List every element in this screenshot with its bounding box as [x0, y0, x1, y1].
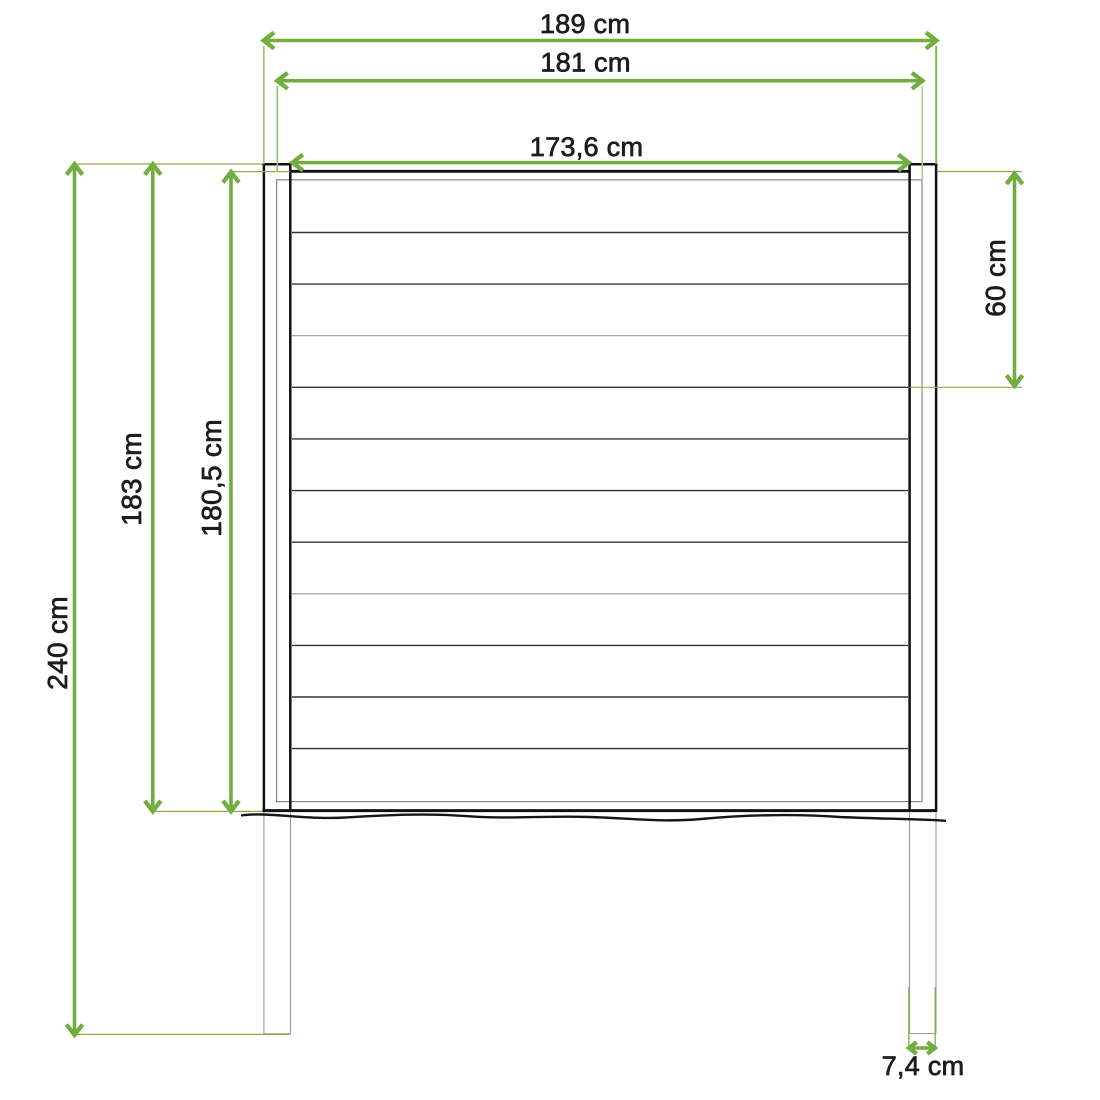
svg-text:181 cm: 181 cm — [540, 47, 630, 78]
svg-text:60 cm: 60 cm — [979, 239, 1011, 317]
svg-text:183 cm: 183 cm — [115, 432, 147, 526]
svg-text:173,6 cm: 173,6 cm — [530, 131, 643, 162]
svg-text:7,4 cm: 7,4 cm — [882, 1050, 965, 1081]
svg-text:189 cm: 189 cm — [540, 8, 630, 39]
svg-text:240 cm: 240 cm — [41, 596, 73, 690]
svg-text:180,5 cm: 180,5 cm — [195, 419, 227, 537]
